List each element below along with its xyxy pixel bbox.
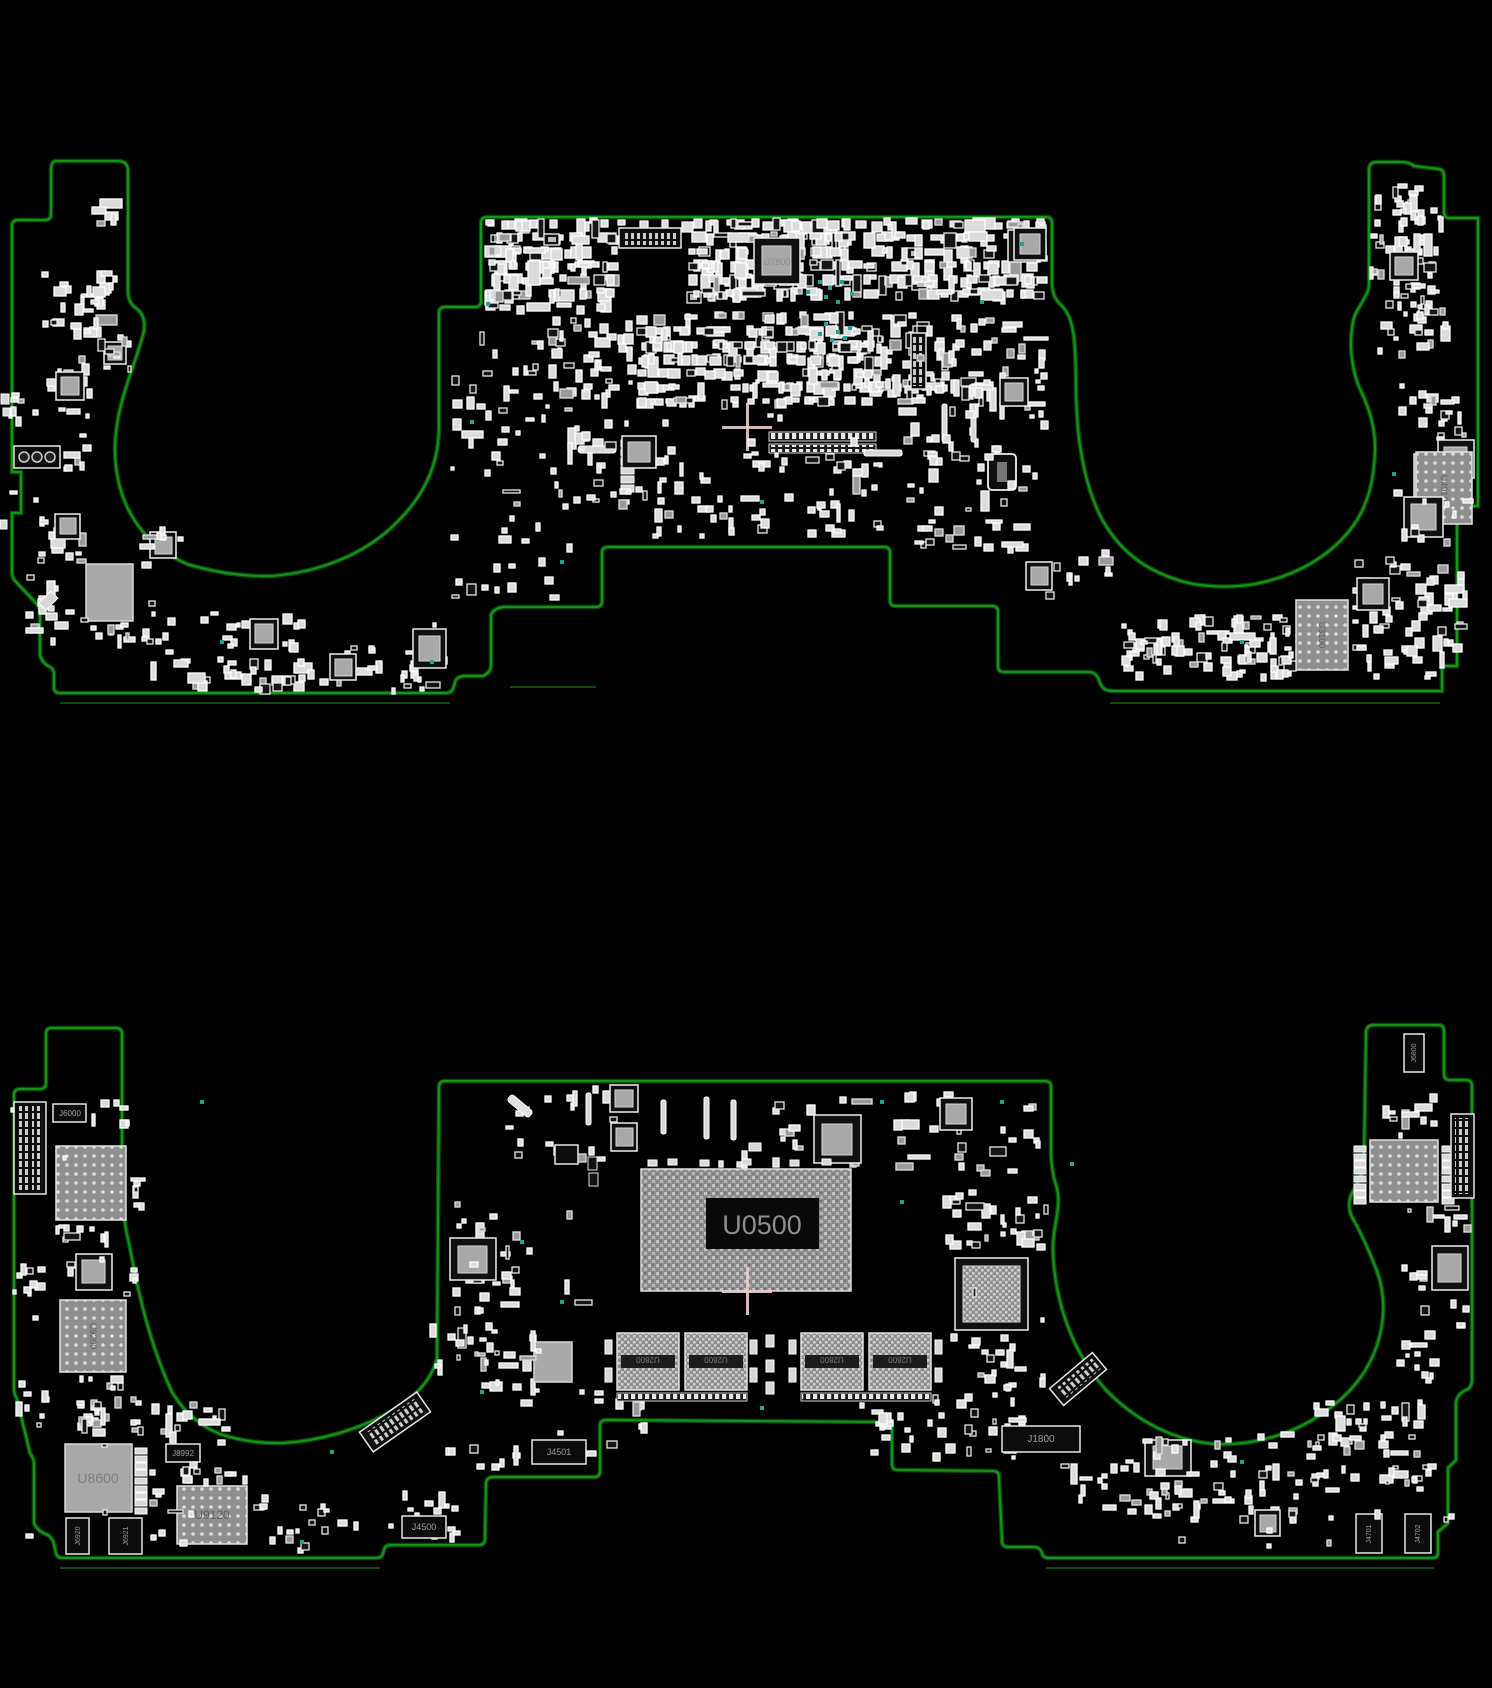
svg-text:U2800: U2800 <box>888 1355 912 1364</box>
svg-text:U9120: U9120 <box>194 1508 230 1522</box>
svg-text:J6920: J6920 <box>75 1526 82 1545</box>
svg-text:U9200: U9200 <box>88 1323 98 1350</box>
svg-text:U3100: U3100 <box>1317 622 1327 649</box>
svg-text:U7800: U7800 <box>764 257 791 267</box>
svg-text:J6000: J6000 <box>59 1109 81 1118</box>
svg-text:U2800: U2800 <box>820 1355 844 1364</box>
svg-text:J6921: J6921 <box>123 1526 130 1545</box>
svg-text:J1800: J1800 <box>1027 1434 1055 1445</box>
svg-text:U2800: U2800 <box>636 1355 660 1364</box>
svg-text:U0500: U0500 <box>722 1210 802 1240</box>
svg-text:J4701: J4701 <box>1366 1524 1373 1543</box>
svg-text:U8600: U8600 <box>77 1470 118 1486</box>
svg-text:J4702: J4702 <box>1415 1524 1422 1543</box>
svg-text:J6800: J6800 <box>1411 1043 1418 1062</box>
svg-text:J8992: J8992 <box>172 1449 194 1458</box>
svg-text:J4500: J4500 <box>412 1522 437 1532</box>
svg-text:U2800: U2800 <box>704 1355 728 1364</box>
svg-text:J4501: J4501 <box>547 1447 572 1457</box>
